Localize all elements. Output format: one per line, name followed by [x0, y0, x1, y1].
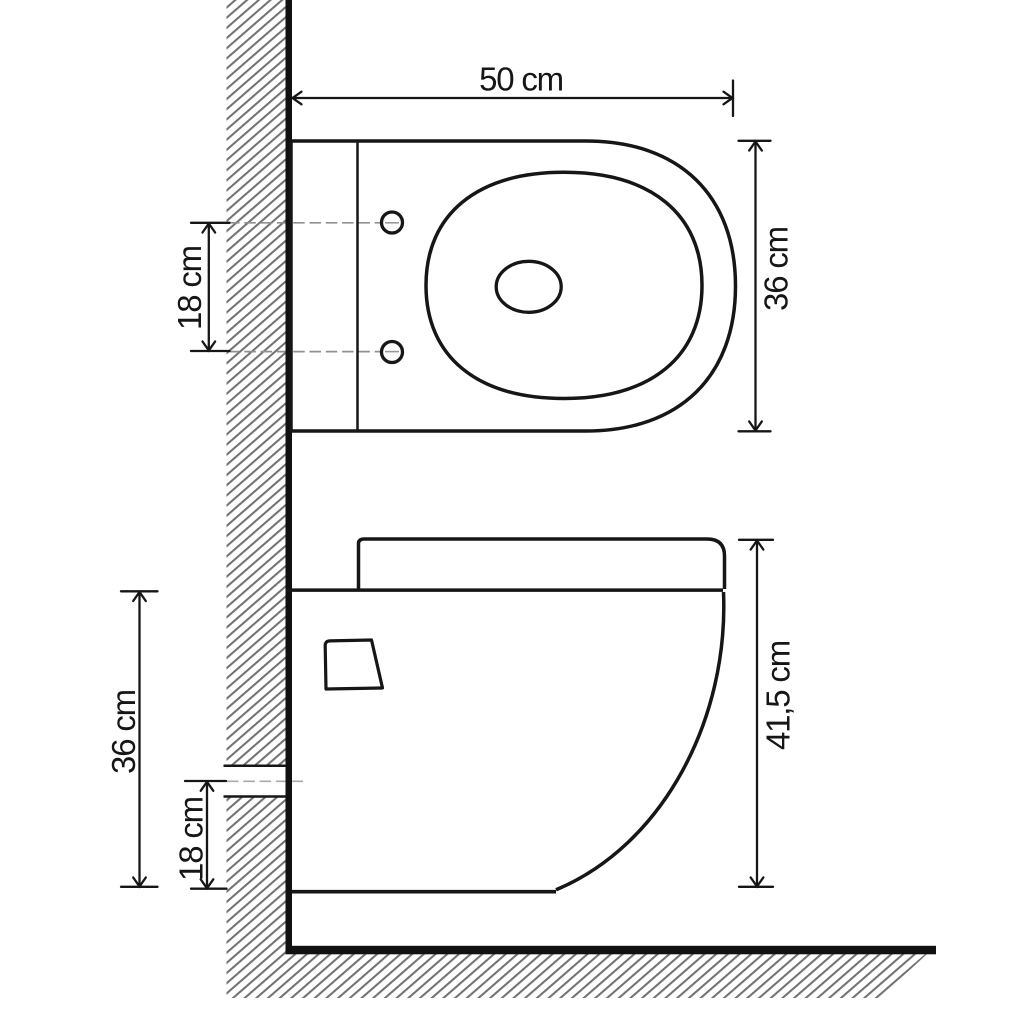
svg-text:36 cm: 36 cm: [105, 690, 142, 774]
svg-text:41,5 cm: 41,5 cm: [760, 641, 797, 750]
svg-text:36 cm: 36 cm: [758, 227, 795, 311]
svg-text:18 cm: 18 cm: [173, 797, 210, 881]
svg-text:50 cm: 50 cm: [479, 61, 563, 98]
svg-text:18 cm: 18 cm: [171, 246, 208, 330]
